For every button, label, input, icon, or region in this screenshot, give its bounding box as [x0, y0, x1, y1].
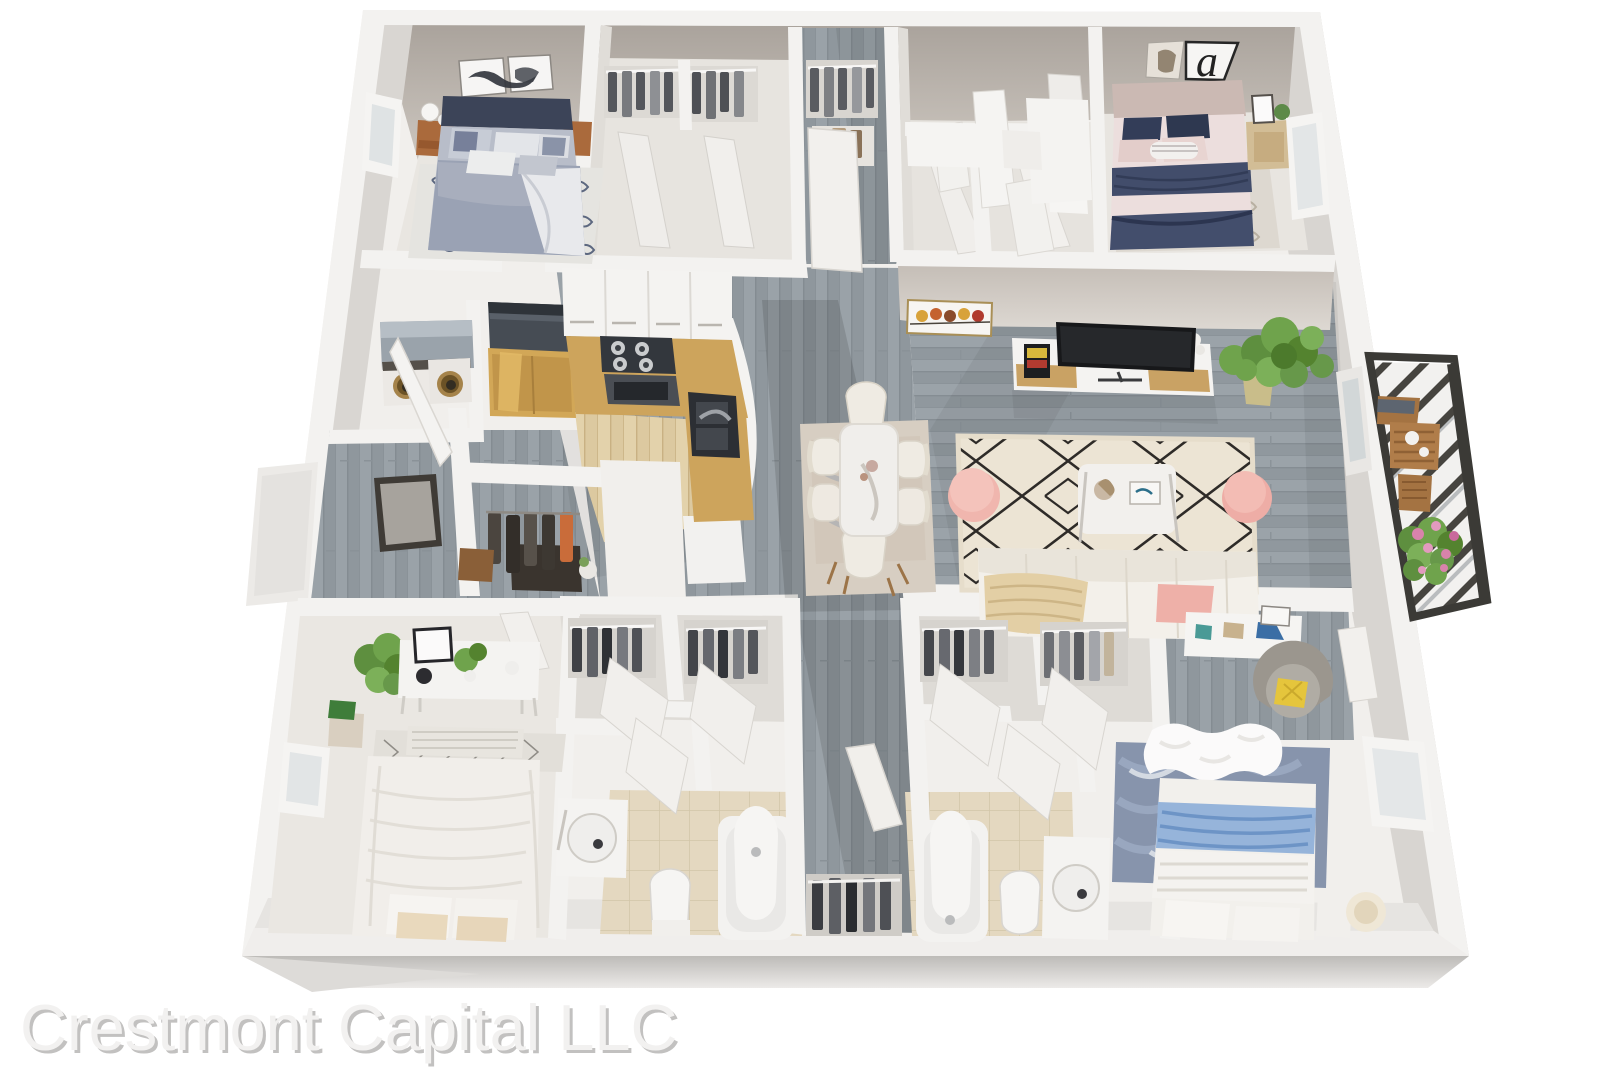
svg-text:a: a — [1196, 37, 1218, 86]
svg-text:Crestmont Capital LLC: Crestmont Capital LLC — [20, 991, 678, 1064]
